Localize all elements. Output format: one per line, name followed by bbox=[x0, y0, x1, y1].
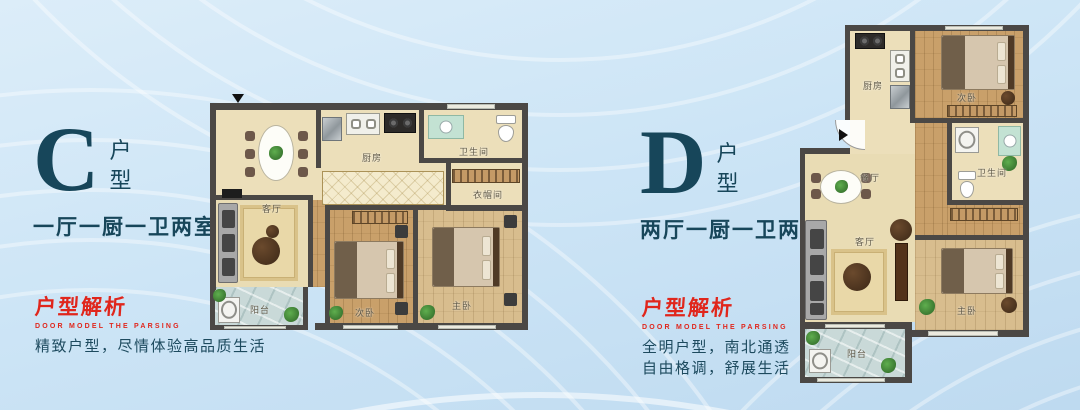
entry-arrow-icon bbox=[839, 129, 848, 141]
stove-icon bbox=[855, 33, 885, 49]
entry-arrow-icon bbox=[232, 94, 244, 103]
plan-d-label-dining: 餐厅 bbox=[860, 171, 880, 184]
plan-d-floor-hall bbox=[915, 123, 947, 240]
toilet-icon bbox=[958, 171, 976, 198]
plan-c-sofa bbox=[218, 203, 238, 283]
panel-d-description-1: 全明户型，南北通透 bbox=[642, 339, 791, 356]
plan-c-label-kitchen: 厨房 bbox=[362, 151, 382, 164]
plan-d-sofa bbox=[805, 220, 827, 320]
plan-d-label-bedroom2: 次卧 bbox=[957, 91, 977, 104]
floorplan-d: 厨房 次卧 餐厅 卫生间 客厅 主卧 阳台 bbox=[795, 25, 1035, 383]
vanity-icon bbox=[998, 126, 1021, 156]
panel-d-letter: D bbox=[640, 125, 706, 200]
plan-c-tv bbox=[222, 189, 242, 198]
fridge-icon bbox=[890, 85, 910, 109]
panel-c: C 户型 一厅一厨一卫两室 bbox=[33, 122, 217, 241]
sink-icon bbox=[890, 50, 910, 82]
plan-c-hall-counter bbox=[322, 171, 444, 205]
plan-c-label-master: 主卧 bbox=[452, 299, 472, 312]
plan-d-bed2-stool bbox=[1001, 91, 1015, 105]
washer-icon bbox=[955, 127, 979, 153]
plan-c-master-bed bbox=[432, 227, 500, 287]
plan-d-tv-cabinet bbox=[895, 243, 908, 301]
plan-d-coffee-table bbox=[843, 263, 871, 291]
panel-d-letter-suffix: 户型 bbox=[716, 139, 740, 198]
plan-d-label-kitchen: 厨房 bbox=[863, 79, 883, 92]
plan-d-label-living: 客厅 bbox=[855, 235, 875, 248]
panel-d-analysis: 户型解析 DOOR MODEL THE PARSING 全明户型，南北通透 自由… bbox=[642, 292, 791, 378]
fridge-icon bbox=[322, 117, 342, 141]
plan-d-side-table bbox=[890, 219, 912, 241]
plan-d-master-bed bbox=[941, 248, 1013, 294]
plan-c-label-balcony: 阳台 bbox=[250, 303, 270, 316]
plan-c-label-bedroom2: 次卧 bbox=[355, 306, 375, 319]
floorplan-c: 厨房 卫生间 衣帽间 客厅 次卧 主卧 阳台 bbox=[210, 103, 528, 335]
washer-icon bbox=[809, 349, 831, 373]
panel-c-subtitle: 一厅一厨一卫两室 bbox=[33, 211, 217, 241]
plan-d-master-wardrobe bbox=[950, 208, 1018, 221]
panel-d-analysis-title: 户型解析 bbox=[641, 292, 792, 322]
wardrobe-icon bbox=[452, 169, 520, 183]
plan-c-bed2-wardrobe bbox=[352, 211, 408, 224]
panel-c-description: 精致户型，尽情体验高品质生活 bbox=[35, 338, 266, 355]
plan-c-bed2 bbox=[334, 241, 404, 299]
plan-d-label-bathroom: 卫生间 bbox=[977, 166, 1007, 179]
vanity-icon bbox=[428, 115, 464, 139]
plan-d-label-master: 主卧 bbox=[957, 304, 977, 317]
plan-c-side-table bbox=[266, 225, 279, 238]
panel-c-letter-suffix: 户型 bbox=[109, 136, 133, 195]
plan-d-bed2 bbox=[941, 35, 1015, 90]
panel-c-letter: C bbox=[33, 122, 99, 197]
plan-c-label-bathroom: 卫生间 bbox=[459, 145, 489, 158]
plan-d-bed2-wardrobe bbox=[947, 105, 1017, 117]
panel-d-description-2: 自由格调，舒展生活 bbox=[642, 360, 791, 377]
toilet-icon bbox=[496, 115, 516, 142]
plan-c-coffee-table bbox=[252, 237, 280, 265]
stove-icon bbox=[384, 113, 416, 133]
panel-d-analysis-subtitle: DOOR MODEL THE PARSING bbox=[642, 324, 791, 331]
plan-d-master-stool bbox=[1001, 297, 1017, 313]
floorplan-poster: C 户型 一厅一厨一卫两室 户型解析 DOOR MODEL THE PARSIN… bbox=[0, 0, 1080, 410]
plan-c-label-living: 客厅 bbox=[262, 202, 282, 215]
plan-d-label-balcony: 阳台 bbox=[847, 347, 867, 360]
plan-c-label-cloakroom: 衣帽间 bbox=[473, 188, 503, 201]
sink-icon bbox=[346, 113, 380, 135]
